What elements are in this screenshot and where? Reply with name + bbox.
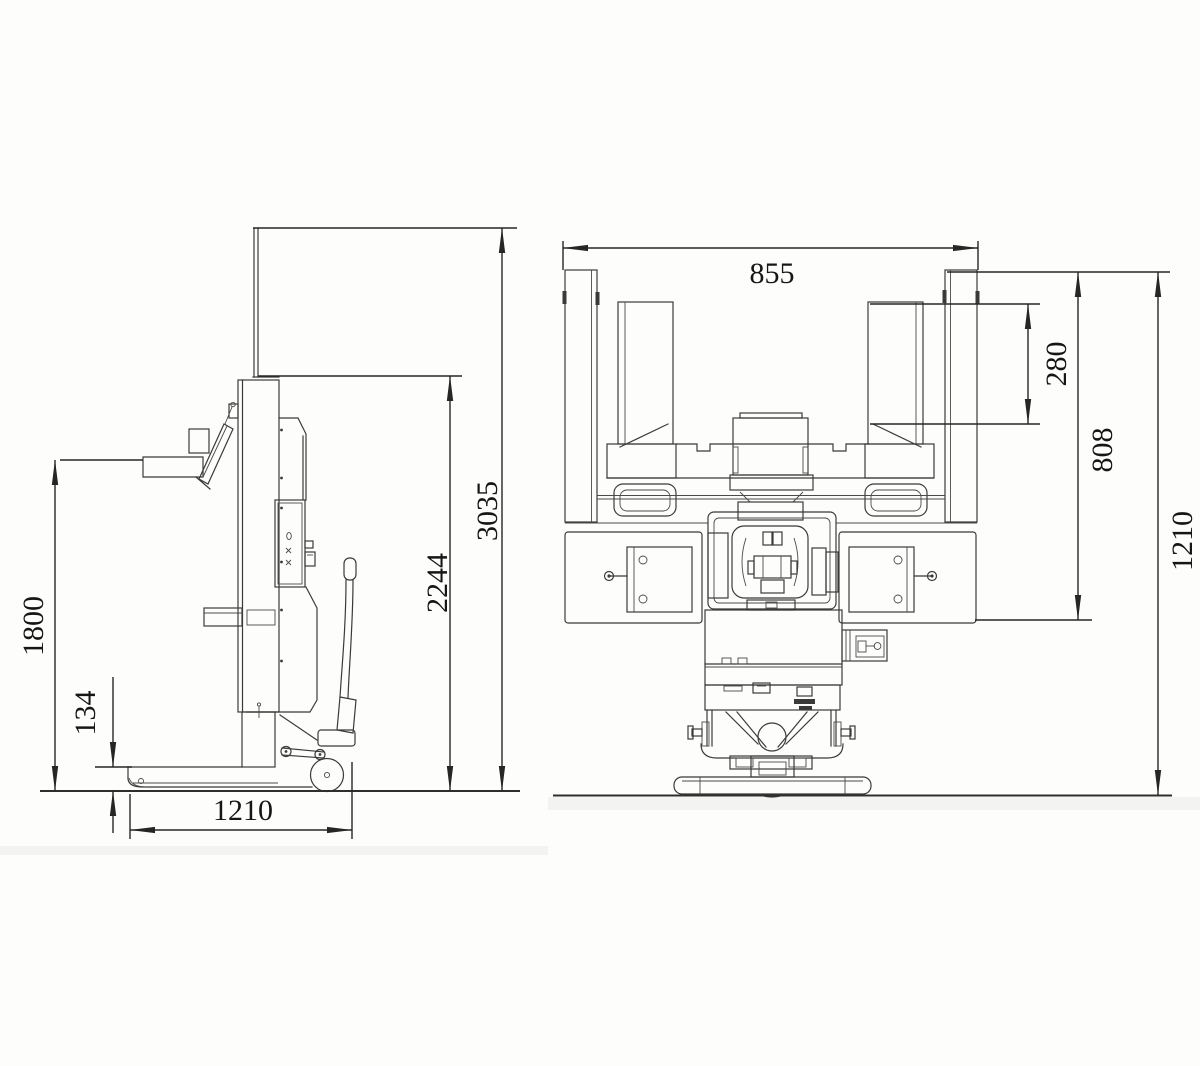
center-carriage: [730, 413, 813, 520]
side-attachment: [842, 630, 887, 661]
left-post: [563, 270, 600, 522]
scan-shading-band: [0, 846, 548, 855]
clamp-mechanism: [708, 512, 838, 610]
technical-drawing-page: 1800 134 2244 3035 1210: [0, 0, 1200, 1066]
dim-overall-length: 1210: [130, 762, 352, 839]
dim-mast-height: 2244: [258, 376, 462, 791]
battery-box: [275, 500, 315, 587]
lower-body: [705, 610, 842, 685]
dim-overall-height-raised: 3035: [253, 228, 517, 791]
front-view: 855 280 808 1210: [553, 241, 1199, 797]
dim-label-3035: 3035: [471, 481, 504, 541]
right-fork-plate: [865, 302, 934, 516]
dim-label-855: 855: [750, 257, 795, 290]
dim-platform-height: 1800: [17, 460, 143, 791]
dim-plate-height: 280: [870, 304, 1073, 424]
machine-dimension-drawing: 1800 134 2244 3035 1210: [0, 0, 1200, 1066]
base-plate: [674, 777, 871, 797]
right-post: [943, 270, 980, 522]
scan-shading-band: [548, 797, 1200, 810]
dim-label-1800: 1800: [17, 596, 50, 656]
control-console: [189, 402, 235, 484]
dim-label-1210-length: 1210: [213, 794, 273, 827]
left-fork-plate: [607, 302, 676, 516]
caster-fork: [688, 710, 855, 777]
battery-label-marks: [286, 532, 291, 565]
dim-fork-frame-width: 855: [563, 241, 978, 290]
dim-label-2244: 2244: [421, 553, 454, 613]
mast-raised-profile: [253, 228, 279, 377]
dim-frame-height: 808: [975, 272, 1119, 620]
dim-label-808: 808: [1086, 428, 1119, 473]
drive-wheel: [311, 759, 344, 792]
carriage-bracket: [204, 608, 275, 626]
operator-tray: [143, 457, 210, 489]
mast-column: [229, 380, 279, 767]
fork-base: [128, 767, 312, 787]
dim-label-134: 134: [69, 691, 102, 736]
dim-fork-height: 134: [69, 677, 132, 833]
right-side-box: [839, 532, 976, 623]
body-housing: [247, 418, 317, 712]
tiller-handle: [318, 558, 356, 746]
dim-overall-height-front: 1210: [947, 272, 1199, 795]
dim-label-280: 280: [1040, 342, 1073, 387]
left-side-box: [565, 532, 702, 623]
side-view: 1800 134 2244 3035 1210: [17, 228, 520, 839]
dim-label-1210-height: 1210: [1166, 511, 1199, 571]
chassis-tier: [705, 683, 840, 710]
charge-port: [305, 541, 315, 566]
